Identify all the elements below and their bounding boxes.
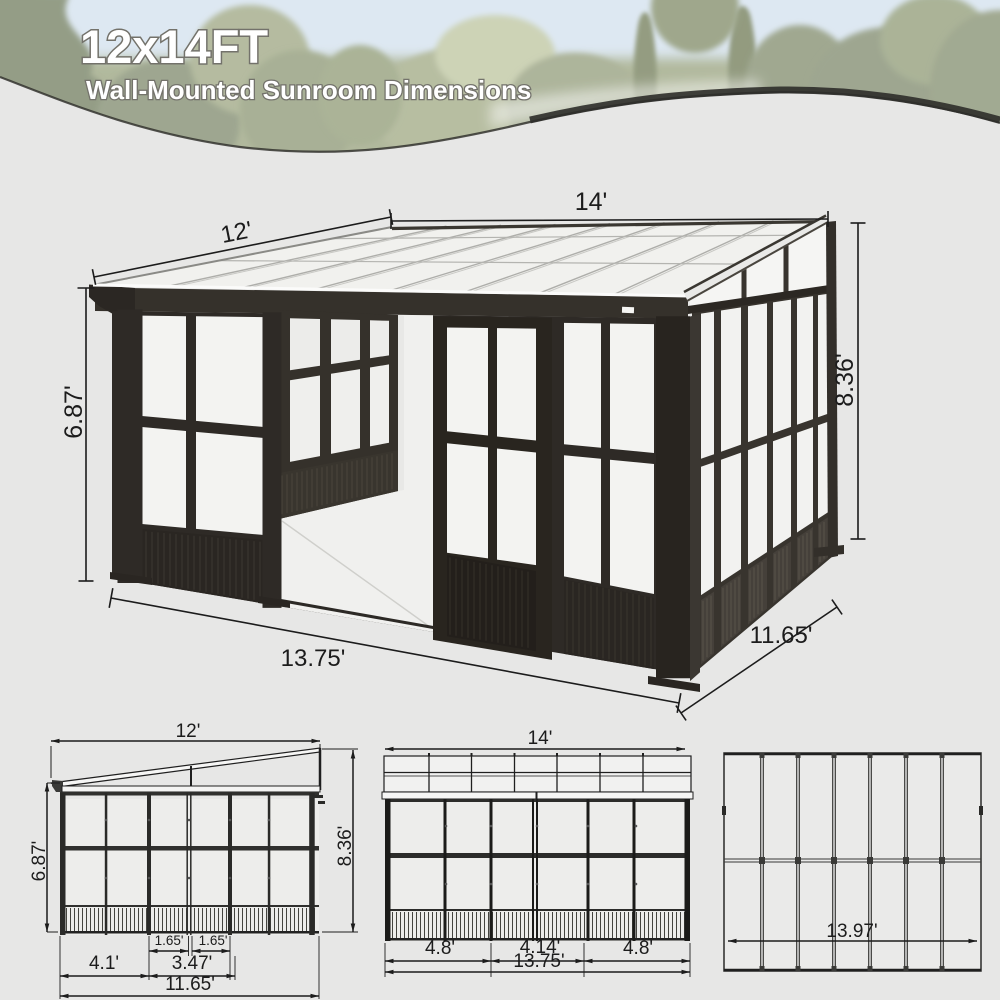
svg-text:4.1': 4.1' [89, 953, 119, 974]
svg-text:12x14FT: 12x14FT [80, 20, 268, 73]
svg-text:1.65': 1.65' [155, 933, 184, 948]
svg-text:3.47': 3.47' [172, 953, 213, 974]
svg-text:4.8': 4.8' [425, 938, 455, 959]
svg-text:11.65': 11.65' [165, 974, 215, 995]
svg-text:4.8': 4.8' [623, 938, 653, 959]
svg-text:1.65': 1.65' [199, 933, 228, 948]
svg-text:6.87': 6.87' [29, 841, 50, 882]
svg-text:11.65': 11.65' [750, 622, 813, 649]
svg-text:12': 12' [176, 721, 201, 742]
svg-text:14': 14' [528, 728, 553, 749]
svg-text:Wall-Mounted Sunroom Dimension: Wall-Mounted Sunroom Dimensions [86, 75, 531, 105]
svg-text:8.36': 8.36' [831, 353, 859, 406]
svg-text:13.75': 13.75' [513, 951, 564, 972]
svg-text:14': 14' [575, 188, 608, 216]
svg-text:8.36': 8.36' [335, 826, 356, 867]
svg-text:13.75': 13.75' [281, 645, 346, 672]
svg-text:6.87': 6.87' [60, 385, 88, 438]
svg-text:13.97': 13.97' [826, 921, 877, 942]
